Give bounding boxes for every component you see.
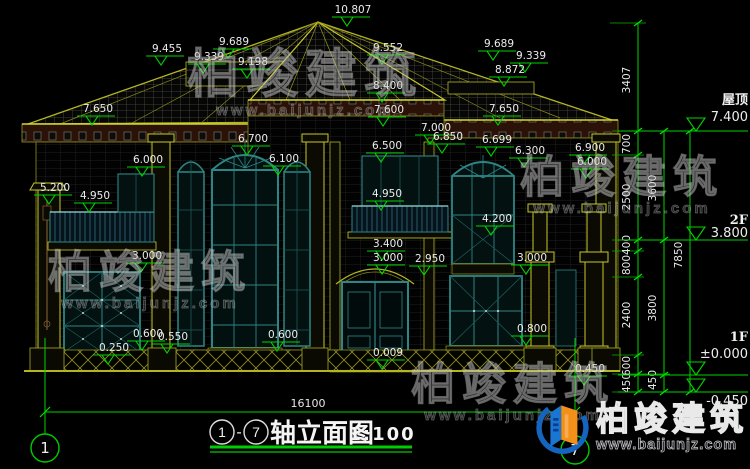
left-balcony-railing — [50, 212, 154, 242]
elevation-label: 6.850 — [433, 131, 463, 143]
elevation-label: 7.600 — [374, 104, 404, 116]
elevation-label: 0.550 — [158, 331, 188, 343]
elevation-label: 8.872 — [495, 64, 525, 76]
elevation-label: 2.950 — [415, 253, 445, 265]
elevation-label: 8.400 — [373, 80, 403, 92]
elevation-label: 9.689 — [484, 38, 514, 50]
company-logo-brand: 柏竣建筑 — [596, 402, 748, 435]
level-name: 屋顶 — [722, 93, 748, 108]
right-1f-window — [446, 276, 526, 351]
elevation-marker-triangle — [155, 56, 167, 65]
drawing-title: 1 - 7 轴立面图 1:100 — [210, 418, 416, 452]
elevation-label: 9.339 — [516, 50, 546, 62]
chain-dimension-label: 2500 — [621, 184, 633, 211]
company-logo-url: www.baijunjz.com — [596, 438, 748, 453]
elevation-label: 0.600 — [268, 329, 298, 341]
elevation-label: 0.450 — [575, 363, 605, 375]
level-name: 1F — [730, 330, 749, 345]
elevation-label: 5.200 — [40, 182, 70, 194]
title-scale: 1:100 — [348, 424, 415, 445]
axis-bubble-1-number: 1 — [40, 439, 50, 457]
elevation-label: 6.300 — [515, 145, 545, 157]
title-axis-start: 1 — [218, 424, 226, 440]
elevation-label: 6.100 — [269, 153, 299, 165]
chain-dimension-label: 400 — [621, 235, 633, 255]
porch-slot-window — [556, 270, 576, 346]
center-window-group — [178, 142, 310, 353]
level-value: ±0.000 — [700, 347, 748, 362]
title-separator: - — [236, 424, 241, 441]
elevation-label: 9.689 — [219, 36, 249, 48]
elevation-label: 3.000 — [517, 252, 547, 264]
chain-dimension-label: 3407 — [621, 67, 633, 94]
chain-dimension-label: 700 — [621, 134, 633, 154]
elevation-label: 7.650 — [83, 103, 113, 115]
elevation-marker-triangle — [487, 51, 499, 60]
company-logo: 柏竣建筑 www.baijunjz.com — [536, 396, 748, 458]
elevation-marker-triangle — [341, 17, 353, 26]
elevation-label: 10.807 — [335, 4, 372, 16]
chain-dimension-label: 3600 — [647, 175, 659, 202]
chain-dimension-label: 3800 — [647, 295, 659, 322]
elevation-marker-triangle — [578, 376, 590, 385]
cad-elevation-screenshot: 3407700250040080024006004503600380045078… — [0, 0, 750, 469]
level-triangle — [687, 118, 705, 131]
chain-dimension-label: 7850 — [673, 242, 685, 269]
left-balcony-slab — [48, 242, 156, 250]
elevation-label: 9.339 — [194, 51, 224, 63]
elevation-label: 9.198 — [238, 56, 268, 68]
elevation-label: 6.000 — [577, 156, 607, 168]
elevation-label: 6.000 — [133, 154, 163, 166]
level-value: 7.400 — [711, 110, 748, 125]
elevation-label: 9.455 — [152, 43, 182, 55]
elevation-label: 4.950 — [80, 190, 110, 202]
elevation-label: 3.000 — [132, 250, 162, 262]
chain-dimension-label: 450 — [621, 373, 633, 393]
total-width-dimension: 16100 — [291, 397, 326, 410]
elevation-label: 0.250 — [99, 342, 129, 354]
elevation-label: 6.900 — [575, 142, 605, 154]
elevation-label: 0.800 — [517, 323, 547, 335]
elevation-label: 9.552 — [373, 42, 403, 54]
chain-dimension-label: 800 — [621, 255, 633, 275]
elevation-label: 6.699 — [482, 134, 512, 146]
elevation-label: 3.000 — [373, 252, 403, 264]
title-axis-end: 7 — [252, 424, 260, 440]
level-value: 3.800 — [711, 226, 748, 241]
elevation-label: 3.400 — [373, 238, 403, 250]
dimension-chains: 3407700250040080024006004503600380045078… — [610, 20, 696, 395]
elevation-label: 6.700 — [238, 133, 268, 145]
elevation-label: 6.500 — [372, 140, 402, 152]
elevation-label: 0.009 — [373, 347, 403, 359]
elevation-label: 4.950 — [372, 188, 402, 200]
elevation-label: 7.650 — [489, 103, 519, 115]
chain-dimension-label: 450 — [647, 370, 659, 390]
elevation-label: 4.200 — [482, 213, 512, 225]
chain-dimension-label: 2400 — [621, 302, 633, 329]
roof-step-band — [448, 82, 534, 94]
company-logo-icon — [536, 396, 590, 458]
